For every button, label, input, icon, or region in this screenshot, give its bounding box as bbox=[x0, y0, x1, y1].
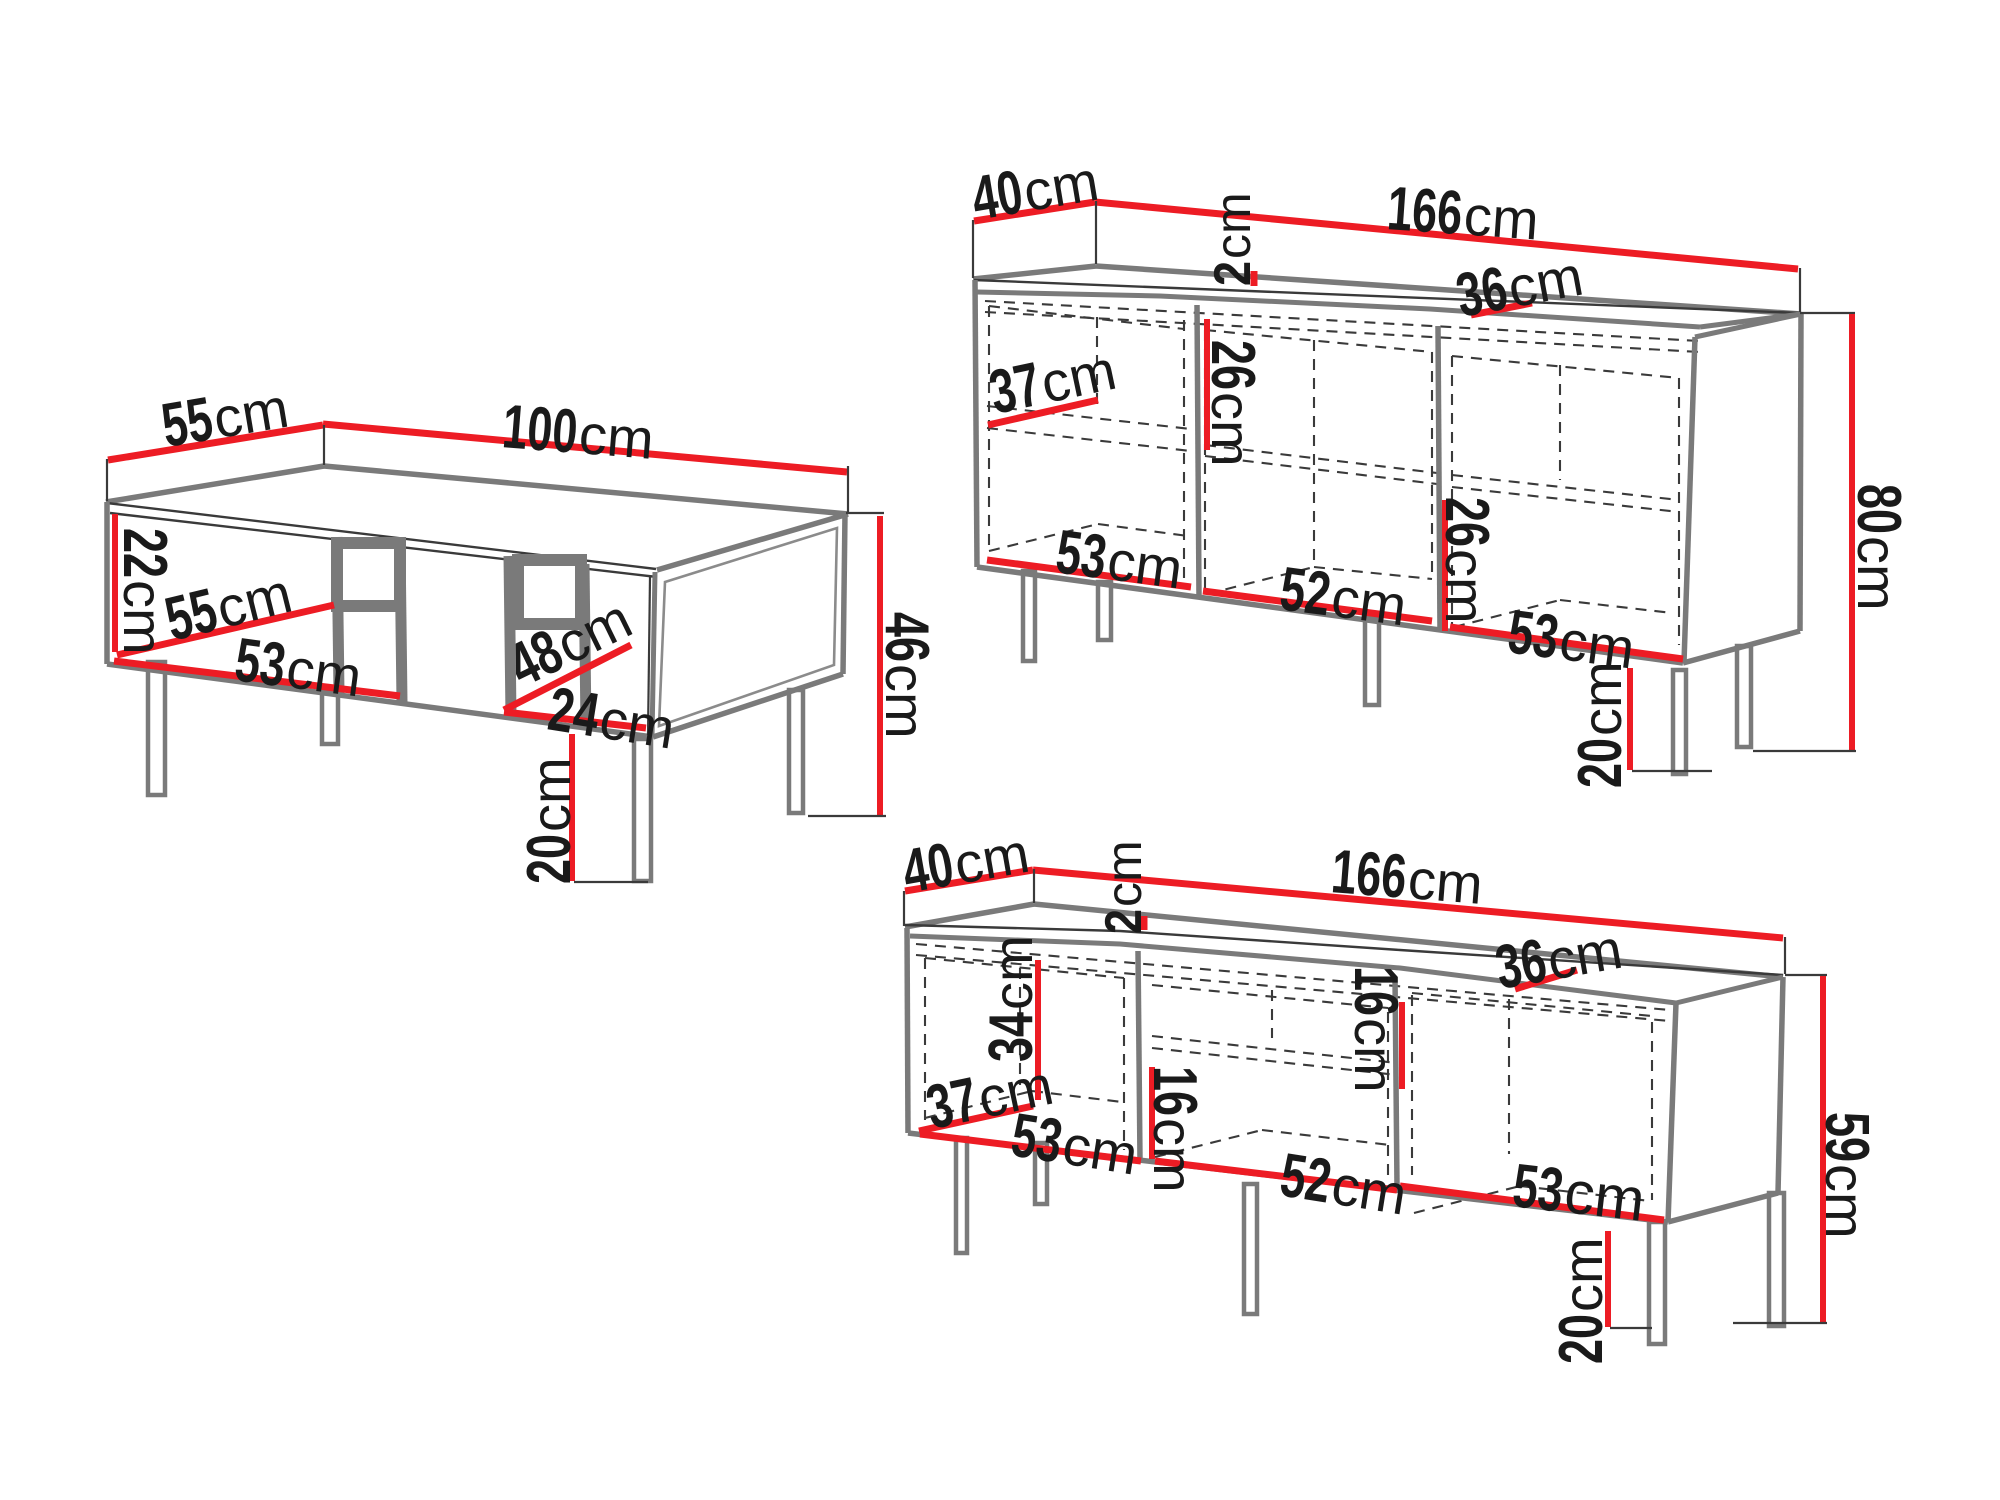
svg-text:cm: cm bbox=[209, 376, 293, 450]
svg-text:cm: cm bbox=[1570, 661, 1633, 736]
svg-text:16: 16 bbox=[1341, 966, 1410, 1016]
svg-text:53: 53 bbox=[231, 625, 290, 700]
svg-text:34: 34 bbox=[977, 1012, 1046, 1062]
svg-text:cm: cm bbox=[1328, 565, 1410, 637]
svg-text:46: 46 bbox=[872, 612, 941, 662]
svg-text:cm: cm bbox=[1019, 149, 1103, 223]
svg-text:cm: cm bbox=[1096, 840, 1152, 907]
svg-text:20: 20 bbox=[1547, 1314, 1616, 1364]
svg-text:53: 53 bbox=[1504, 597, 1563, 672]
svg-text:20: 20 bbox=[515, 834, 584, 884]
svg-text:80: 80 bbox=[1844, 484, 1913, 534]
svg-text:53: 53 bbox=[1007, 1101, 1067, 1177]
svg-text:cm: cm bbox=[283, 636, 365, 708]
svg-text:cm: cm bbox=[1200, 392, 1263, 467]
svg-text:cm: cm bbox=[874, 664, 937, 739]
svg-text:cm: cm bbox=[1462, 183, 1541, 251]
svg-text:cm: cm bbox=[1542, 917, 1626, 992]
svg-text:cm: cm bbox=[1104, 528, 1186, 600]
svg-text:53: 53 bbox=[1052, 517, 1111, 592]
svg-text:cm: cm bbox=[595, 687, 679, 761]
svg-text:59: 59 bbox=[1812, 1112, 1881, 1162]
svg-text:cm: cm bbox=[1503, 244, 1588, 320]
svg-text:cm: cm bbox=[577, 402, 656, 471]
svg-text:cm: cm bbox=[1142, 1118, 1205, 1193]
svg-text:cm: cm bbox=[1327, 1153, 1411, 1227]
svg-text:2: 2 bbox=[1095, 909, 1153, 934]
svg-text:cm: cm bbox=[1205, 192, 1261, 259]
svg-text:16: 16 bbox=[1140, 1066, 1209, 1116]
svg-text:53: 53 bbox=[1509, 1151, 1566, 1225]
svg-text:cm: cm bbox=[1561, 1158, 1648, 1234]
svg-text:52: 52 bbox=[1276, 554, 1335, 629]
svg-text:166: 166 bbox=[1329, 837, 1409, 912]
svg-text:cm: cm bbox=[519, 757, 582, 832]
svg-text:cm: cm bbox=[981, 935, 1044, 1010]
svg-text:cm: cm bbox=[1343, 1018, 1406, 1093]
svg-text:52: 52 bbox=[1276, 1141, 1336, 1217]
svg-text:100: 100 bbox=[500, 392, 580, 467]
svg-text:2: 2 bbox=[1204, 261, 1262, 286]
svg-text:26: 26 bbox=[1198, 340, 1267, 390]
svg-text:cm: cm bbox=[1551, 1237, 1614, 1312]
svg-text:20: 20 bbox=[1566, 738, 1635, 788]
svg-text:26: 26 bbox=[1432, 497, 1501, 547]
svg-text:cm: cm bbox=[1058, 1113, 1142, 1187]
svg-text:cm: cm bbox=[1846, 536, 1909, 611]
svg-text:166: 166 bbox=[1385, 174, 1465, 248]
svg-text:cm: cm bbox=[1406, 847, 1485, 916]
svg-text:cm: cm bbox=[1814, 1164, 1877, 1239]
svg-text:cm: cm bbox=[949, 821, 1033, 896]
svg-text:22: 22 bbox=[110, 528, 179, 578]
svg-text:cm: cm bbox=[1434, 549, 1497, 624]
